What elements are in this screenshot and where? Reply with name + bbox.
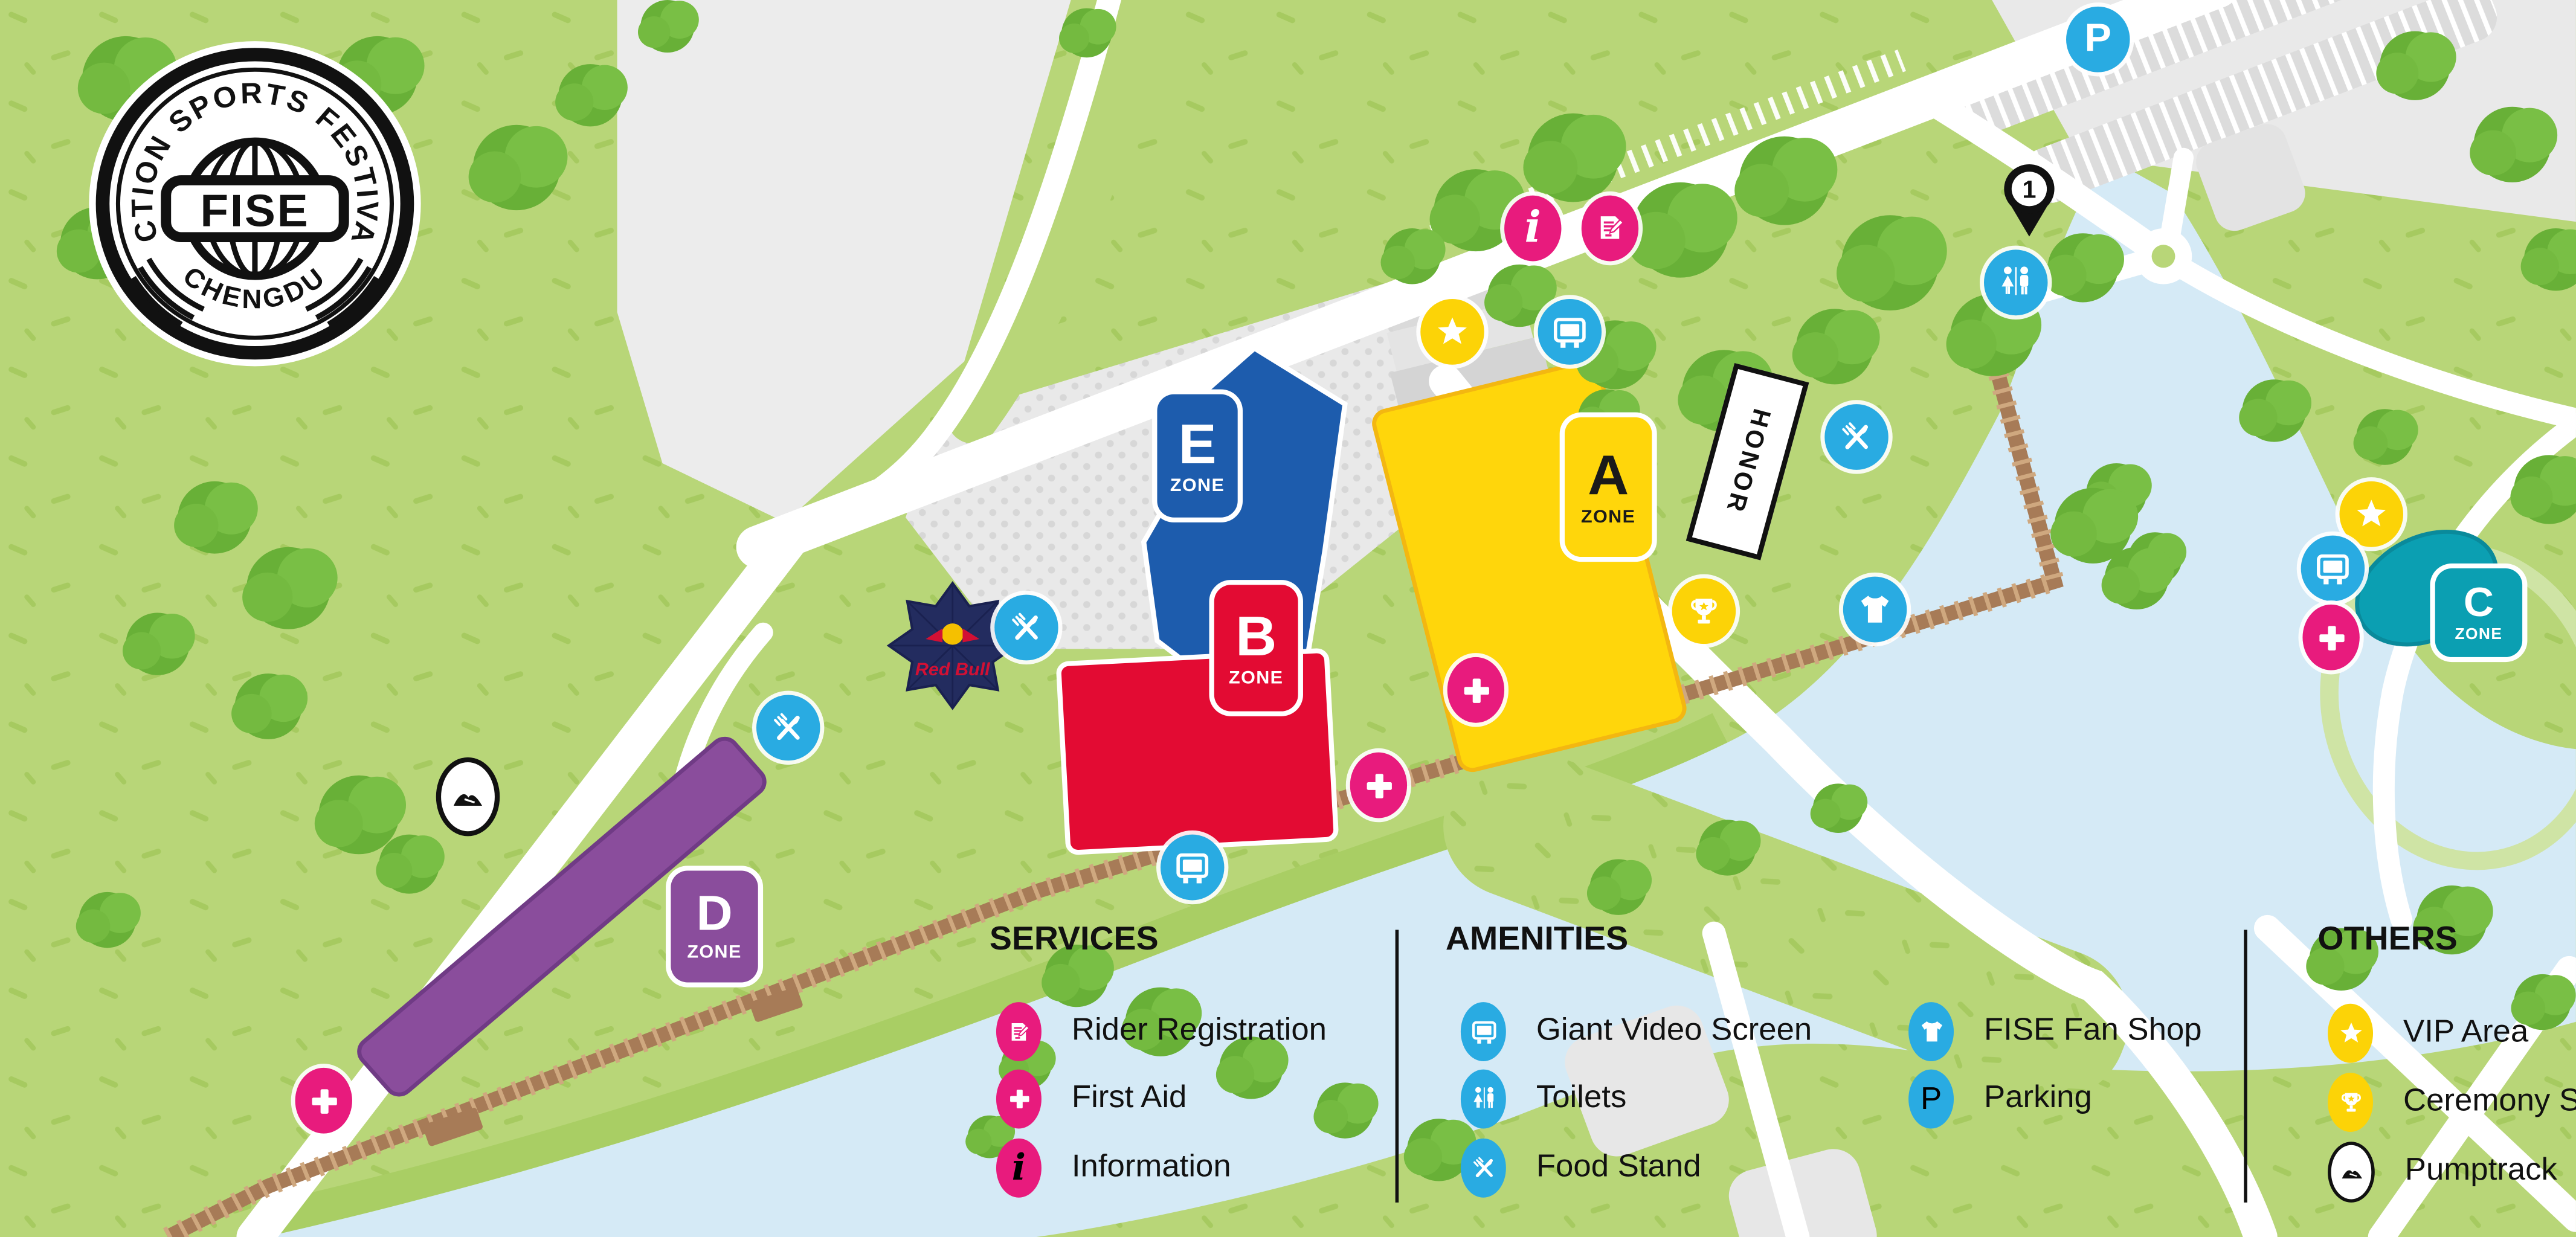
legend-item-food-stand: Food Stand [1461,1139,1701,1198]
giant-video-screen-icon [1161,835,1224,901]
zone-a-word: ZONE [1581,509,1635,527]
zone-e-label: E ZONE [1157,394,1237,518]
zone-c-word: ZONE [2455,627,2503,643]
zone-e-letter: E [1179,416,1217,472]
zone-a-label: A ZONE [1565,417,1652,557]
ceremony-stage-icon [2328,1073,2373,1132]
legend-item-information: i Information [996,1139,1231,1198]
food-stand-icon [756,695,820,760]
legend-divider [1396,930,1398,1202]
pumptrack-icon [2328,1141,2375,1202]
legend-item-giant-video-screen: Giant Video Screen [1461,1002,1812,1061]
map-stage: Red Bull A ZONE B ZONE C ZO [0,0,2576,1237]
parking-icon: P [1908,1070,1954,1129]
food-stand-icon [1461,1139,1506,1198]
zone-b-letter: B [1235,609,1277,664]
roundabout [2135,228,2192,284]
zone-d-word: ZONE [687,945,741,963]
zone-e-word: ZONE [1170,477,1225,495]
vip-area-icon [1420,299,1484,365]
fise-fan-shop-icon [1843,577,1907,643]
zone-c-label: C ZONE [2435,568,2522,657]
food-stand-icon [994,595,1058,661]
zone-d-label: D ZONE [671,870,758,982]
zone-b-word: ZONE [1229,669,1283,687]
vip-area-icon [2340,481,2403,547]
legend-services-title: SERVICES [990,922,1159,960]
vip-area-icon [2328,1004,2373,1063]
first-aid-icon [295,1068,352,1134]
legend-item-fise-fan-shop: FISE Fan Shop [1908,1002,2202,1061]
pumptrack-icon [436,757,500,837]
red-bull-umbrella: Red Bull [889,583,1016,708]
legend-item-pumptrack: Pumptrack [2328,1142,2557,1201]
first-aid-icon [1447,657,1504,723]
zone-a-letter: A [1588,448,1629,503]
zone-c-letter: C [2464,583,2494,624]
zone-d-letter: D [696,890,732,940]
zone-b-label: B ZONE [1214,585,1298,711]
first-aid-icon [1350,753,1407,818]
logo-fise-text: FISE [200,185,309,236]
legend-amenities-title: AMENITIES [1446,922,1628,960]
information-icon: i [996,1139,1042,1198]
honor-sign-text: HONOR [1719,406,1776,518]
legend-item-first-aid: First Aid [996,1070,1187,1129]
giant-video-screen-icon [2301,536,2365,602]
rider-registration-icon [996,1002,1042,1061]
red-bull-label: Red Bull [915,660,990,680]
fise-logo: ACTION SPORTS FESTIVAL CHENGDU FISE [84,36,426,371]
legend-item-rider-registration: Rider Registration [996,1002,1327,1061]
first-aid-icon [996,1070,1042,1129]
legend-divider [2244,930,2246,1202]
toilets-icon [1461,1070,1506,1129]
ceremony-stage-icon [1672,578,1736,644]
giant-video-screen-icon [1538,299,1602,365]
fise-festival-map: Red Bull A ZONE B ZONE C ZO [0,0,2576,1237]
rider-registration-icon [1582,196,1638,262]
legend-item-parking: P Parking [1908,1070,2092,1129]
information-icon: i [1504,196,1561,262]
toilets-icon [1984,249,2047,315]
legend-others-title: OTHERS [2317,922,2457,960]
giant-video-screen-icon [1461,1002,1506,1061]
legend-item-vip-area: VIP Area [2328,1004,2528,1063]
marker-number: 1 [2022,176,2036,204]
legend-item-toilets: Toilets [1461,1070,1626,1129]
parking-icon: P [2066,7,2130,72]
first-aid-icon [2302,605,2359,670]
entrance-marker-pin: 1 [2001,162,2058,249]
fise-fan-shop-icon [1908,1002,1954,1061]
food-stand-icon [1824,404,1888,470]
legend-item-ceremony-stage: Ceremony Stage [2328,1073,2576,1132]
